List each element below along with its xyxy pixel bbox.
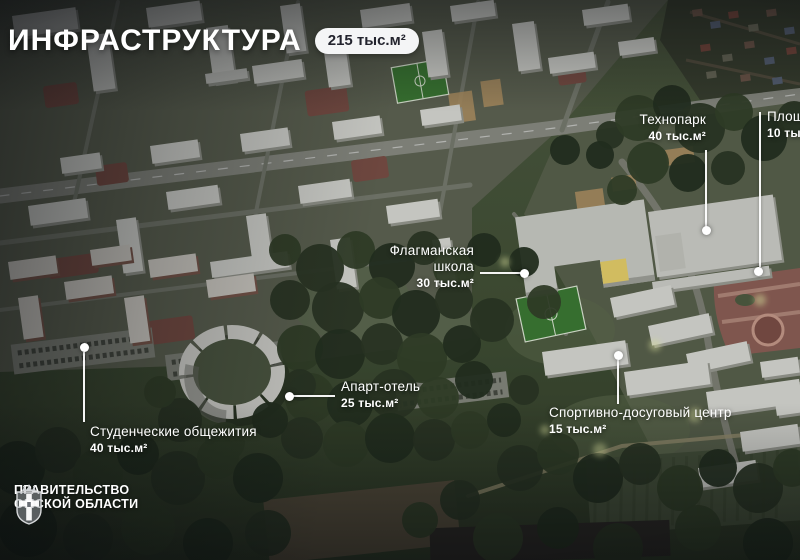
page-title: ИНФРАСТРУКТУРА (8, 24, 302, 58)
leader-line-sport-center (617, 360, 619, 404)
annotation-area: 30 тыс.м² (354, 276, 474, 290)
leader-line-dormitories (83, 352, 85, 422)
annotation-area: 10 тыс.м² (767, 126, 800, 140)
annotation-school: Флагманская школа 30 тыс.м² (354, 243, 474, 290)
leader-line-apart-hotel (293, 395, 335, 397)
header: ИНФРАСТРУКТУРА 215 тыс.м² (8, 24, 419, 58)
annotation-name: Площадь (767, 109, 800, 125)
annotation-area: 40 тыс.м² (90, 441, 257, 455)
marker-dot-dormitories (80, 343, 89, 352)
marker-dot-sport-center (614, 351, 623, 360)
annotation-name: Технопарк (586, 112, 706, 128)
leader-line-square (759, 112, 761, 267)
annotation-area: 40 тыс.м² (586, 129, 706, 143)
annotation-name: Спортивно-досуговый центр (549, 405, 732, 421)
annotation-name: Студенческие общежития (90, 424, 257, 440)
total-area-badge: 215 тыс.м² (315, 28, 419, 54)
annotation-dormitories: Студенческие общежития 40 тыс.м² (90, 424, 257, 455)
annotation-apart-hotel: Апарт-отель 25 тыс.м² (341, 379, 420, 410)
annotation-name: Апарт-отель (341, 379, 420, 395)
school-yellow-block (600, 258, 629, 283)
omsk-coat-of-arms-icon (14, 484, 44, 526)
annotation-square: Площадь 10 тыс.м² (767, 109, 800, 140)
annotation-name: Флагманская школа (354, 243, 474, 275)
leader-line-school (480, 272, 522, 274)
marker-dot-square (754, 267, 763, 276)
annotation-area: 25 тыс.м² (341, 396, 420, 410)
slide-infrastructure: ИНФРАСТРУКТУРА 215 тыс.м² Технопарк 40 т… (0, 0, 800, 560)
annotation-technopark: Технопарк 40 тыс.м² (586, 112, 706, 143)
annotation-area: 15 тыс.м² (549, 422, 732, 436)
marker-dot-technopark (702, 226, 711, 235)
government-logo: ПРАВИТЕЛЬСТВО ОМСКОЙ ОБЛАСТИ (14, 484, 138, 511)
marker-dot-school (520, 269, 529, 278)
leader-line-technopark (705, 150, 707, 228)
annotation-sport-center: Спортивно-досуговый центр 15 тыс.м² (549, 405, 732, 436)
marker-dot-apart-hotel (285, 392, 294, 401)
